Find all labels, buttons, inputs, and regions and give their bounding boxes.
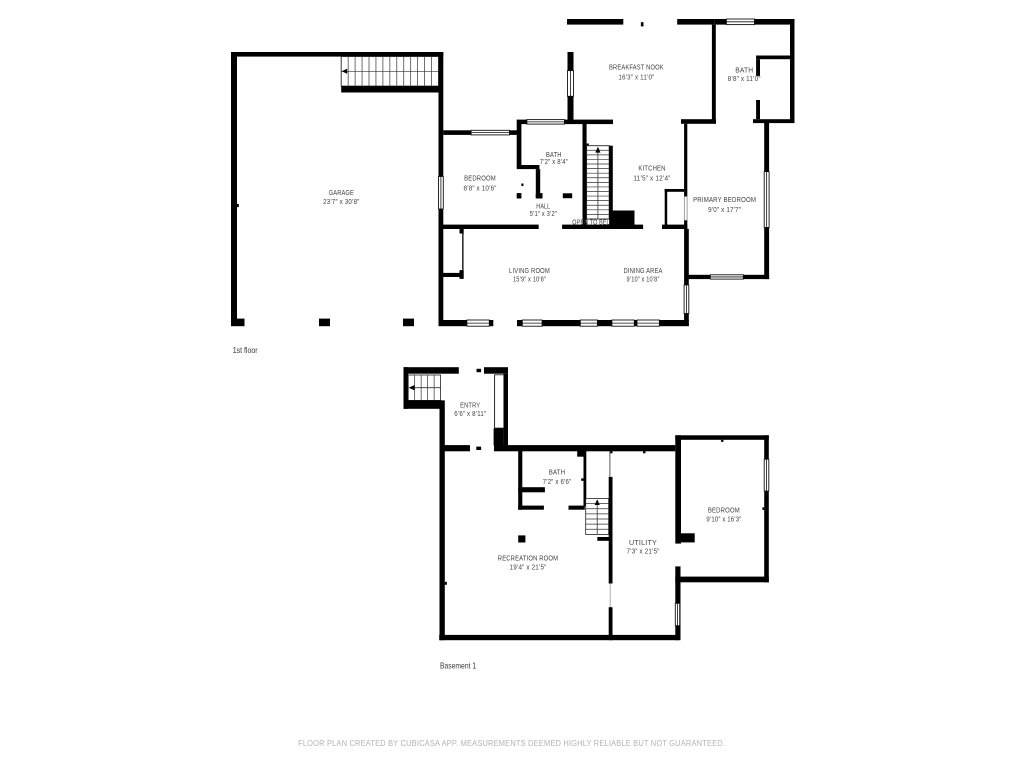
svg-text:LIVING ROOM: LIVING ROOM [509,266,550,275]
svg-text:BEDROOM: BEDROOM [464,174,496,183]
svg-text:RECREATION ROOM: RECREATION ROOM [498,553,558,562]
svg-text:9’10” x 10’8”: 9’10” x 10’8” [627,276,660,283]
svg-text:BATH: BATH [546,150,562,159]
svg-text:23’7” x 30’8”: 23’7” x 30’8” [323,199,360,206]
svg-text:7’2” x 8’4”: 7’2” x 8’4” [540,159,569,166]
svg-text:UTILITY: UTILITY [629,538,657,547]
svg-text:5’1” x 3’2”: 5’1” x 3’2” [530,211,558,218]
svg-text:8’8” x 10’6”: 8’8” x 10’6” [464,186,497,193]
svg-text:FLOOR PLAN CREATED BY CUBICASA: FLOOR PLAN CREATED BY CUBICASA APP. MEAS… [298,738,725,748]
svg-text:16’3” x 11’0”: 16’3” x 11’0” [618,75,655,82]
svg-text:ENTRY: ENTRY [460,401,480,410]
svg-text:HALL: HALL [536,201,550,210]
svg-text:6’6” x 8’11”: 6’6” x 8’11” [454,411,486,418]
svg-text:19’4” x 21’5”: 19’4” x 21’5” [510,565,547,572]
svg-text:7’2” x 6’6”: 7’2” x 6’6” [543,479,572,486]
svg-text:BREAKFAST NOOK: BREAKFAST NOOK [609,63,664,72]
svg-text:9’0” x 17’7”: 9’0” x 17’7” [708,207,741,214]
svg-text:8’8” x 11’0”: 8’8” x 11’0” [728,76,761,83]
svg-text:1st floor: 1st floor [233,346,258,355]
svg-text:BEDROOM: BEDROOM [708,505,740,514]
svg-text:GARAGE: GARAGE [329,188,354,197]
svg-text:9’10” x 16’3”: 9’10” x 16’3” [706,517,741,524]
svg-text:DINING AREA: DINING AREA [624,266,663,275]
svg-text:BATH: BATH [735,65,753,74]
svg-text:15’9” x 10’8”: 15’9” x 10’8” [513,276,546,283]
svg-text:7’3” x 21’5”: 7’3” x 21’5” [627,549,660,556]
svg-text:Basement 1: Basement 1 [440,661,476,670]
svg-text:PRIMARY BEDROOM: PRIMARY BEDROOM [693,195,756,204]
svg-text:BATH: BATH [549,468,566,477]
svg-text:11’5” x 12’4”: 11’5” x 12’4” [633,176,671,183]
svg-text:KITCHEN: KITCHEN [638,164,665,173]
